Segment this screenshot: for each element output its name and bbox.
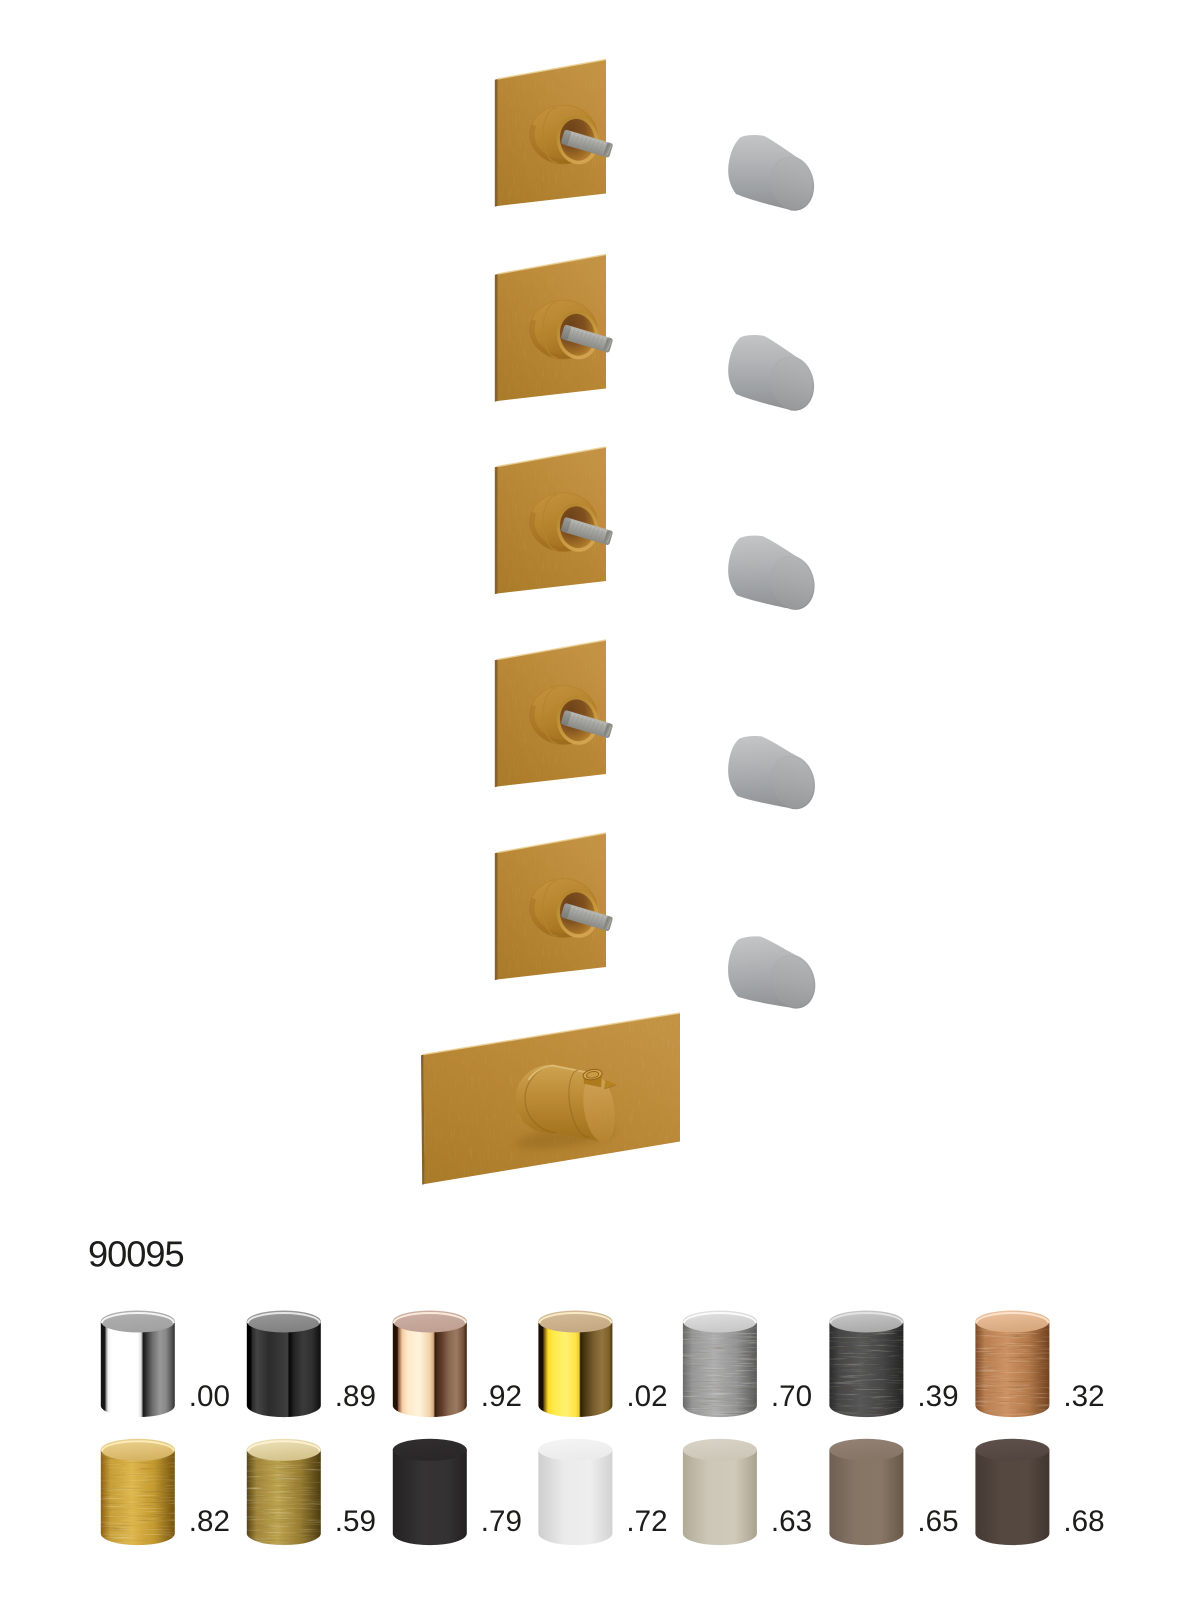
svg-text:.79: .79 [481, 1505, 522, 1538]
svg-text:.59: .59 [335, 1505, 376, 1538]
svg-text:.39: .39 [917, 1380, 958, 1413]
svg-text:90095: 90095 [88, 1234, 184, 1275]
svg-text:.63: .63 [771, 1505, 812, 1538]
svg-text:.02: .02 [626, 1380, 667, 1413]
svg-text:.65: .65 [917, 1505, 958, 1538]
svg-text:.00: .00 [189, 1380, 230, 1413]
svg-text:.32: .32 [1063, 1380, 1104, 1413]
svg-text:.72: .72 [626, 1505, 667, 1538]
svg-text:.68: .68 [1063, 1505, 1104, 1538]
svg-text:.82: .82 [189, 1505, 230, 1538]
svg-text:.70: .70 [771, 1380, 812, 1413]
svg-text:.89: .89 [335, 1380, 376, 1413]
svg-text:.92: .92 [481, 1380, 522, 1413]
